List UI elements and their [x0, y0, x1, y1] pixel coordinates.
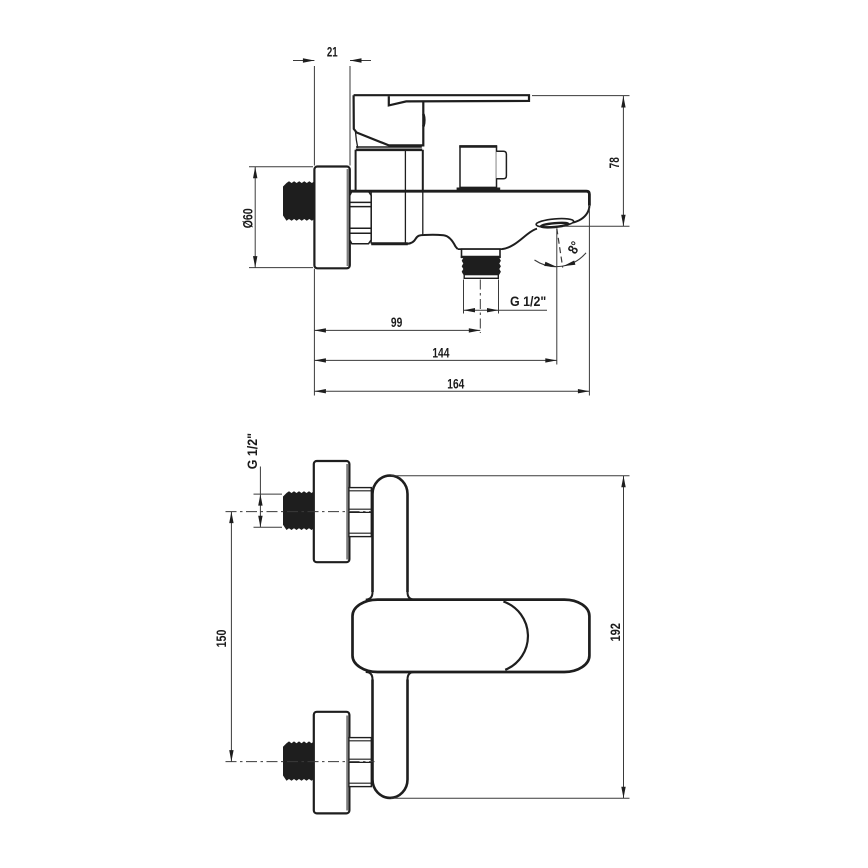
svg-text:21: 21 [327, 44, 338, 60]
svg-text:144: 144 [432, 345, 449, 361]
svg-text:192: 192 [607, 623, 623, 642]
svg-text:G 1/2": G 1/2" [244, 433, 260, 469]
svg-text:G 1/2": G 1/2" [510, 293, 546, 309]
svg-text:150: 150 [213, 629, 229, 647]
svg-text:99: 99 [391, 314, 403, 330]
svg-text:164: 164 [447, 375, 464, 391]
svg-text:Ø60: Ø60 [239, 208, 255, 228]
svg-text:78: 78 [606, 157, 622, 168]
